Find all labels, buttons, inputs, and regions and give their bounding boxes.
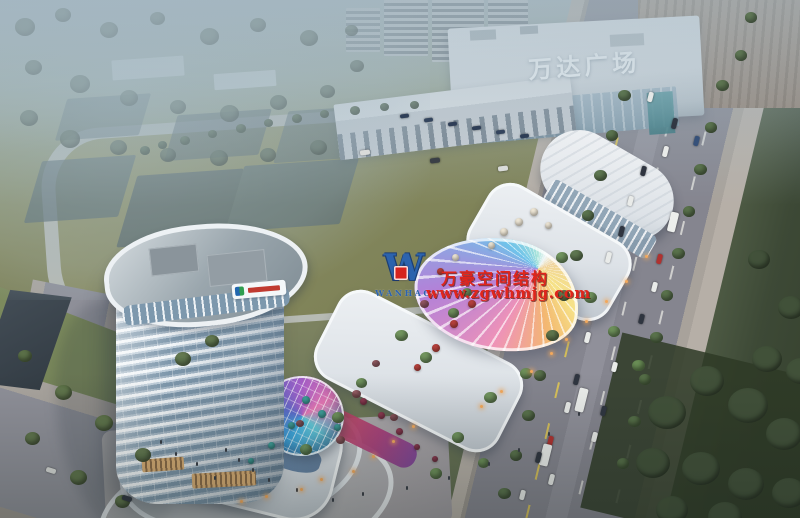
field-edge-tree (158, 141, 167, 149)
watermark-logo-shield-icon (394, 266, 408, 280)
park-tree (690, 366, 724, 396)
patio-umbrella (530, 208, 538, 216)
street-tree (582, 210, 594, 221)
apartment-tower (384, 0, 428, 56)
patio-umbrella (302, 396, 310, 404)
pedestrian (406, 486, 408, 490)
patio-umbrella (334, 424, 341, 431)
rooftop-equipment (149, 244, 200, 277)
storefront-light (265, 495, 268, 498)
street-tree (683, 206, 695, 217)
sidewalk-tree (175, 352, 191, 366)
patio-umbrella (500, 228, 508, 236)
pedestrian (448, 476, 450, 480)
park-tree (636, 448, 670, 478)
rooftop-unit (470, 29, 496, 40)
autumn-shrub (336, 436, 345, 444)
autumn-shrub (296, 420, 304, 427)
park-tree (778, 296, 800, 319)
patio-umbrella (515, 218, 523, 226)
watermark-website-url: www.zgwhmjg.com (426, 284, 591, 302)
pedestrian (578, 412, 580, 416)
podium-tree (448, 308, 459, 318)
hazy-tree (170, 100, 186, 114)
storefront-light (300, 488, 303, 491)
street-tree (617, 458, 629, 469)
hazy-tree (220, 105, 239, 122)
park-tree (656, 496, 688, 518)
sidewalk-tree (70, 470, 87, 485)
field-edge-tree (180, 136, 190, 145)
storefront-light (500, 390, 503, 393)
street-tree (639, 374, 651, 385)
hazy-tree (310, 140, 327, 155)
patio-umbrella (378, 412, 385, 419)
podium-tree (332, 412, 344, 423)
sidewalk-tree (95, 415, 113, 431)
podium-tree (452, 432, 464, 443)
field-edge-tree (140, 146, 150, 155)
podium-tree (420, 352, 432, 363)
hazy-tree (20, 110, 38, 126)
patio-umbrella (248, 458, 254, 464)
pedestrian (548, 432, 550, 436)
storefront-light (480, 405, 483, 408)
autumn-shrub (352, 390, 361, 398)
field-edge-tree (410, 101, 419, 109)
patio-umbrella (432, 456, 438, 462)
field-edge-tree (292, 114, 302, 123)
park-tree (772, 478, 800, 508)
pedestrian (268, 478, 270, 482)
podium-tree (430, 468, 442, 479)
hazy-tree (260, 148, 276, 162)
tower-logo-icon (235, 286, 245, 296)
hazy-tree (160, 148, 176, 162)
storefront-light (530, 370, 533, 373)
hazy-tree (210, 150, 228, 166)
hazy-tree (120, 90, 138, 106)
hazy-building-block (225, 158, 359, 232)
hazy-tree (270, 95, 287, 110)
pedestrian (518, 448, 520, 452)
podium-tree (608, 326, 620, 337)
patio-umbrella (414, 444, 420, 450)
pedestrian (332, 498, 334, 502)
storefront-light (412, 425, 415, 428)
storefront-light (372, 455, 375, 458)
storefront-light (320, 478, 323, 481)
street-tree (745, 12, 757, 23)
storefront-light (645, 255, 648, 258)
field-edge-tree (236, 124, 246, 133)
park-tree (728, 388, 768, 423)
hazy-tree (60, 130, 80, 148)
pedestrian (214, 476, 216, 480)
patio-umbrella (360, 398, 367, 405)
pedestrian (488, 462, 490, 466)
storefront-light (565, 338, 568, 341)
hazy-tree (200, 28, 219, 45)
hazy-tree (25, 60, 42, 75)
pedestrian (225, 448, 227, 452)
hazy-tree (110, 140, 127, 155)
park-tree (766, 418, 800, 450)
storefront-light (550, 352, 553, 355)
pedestrian (160, 440, 162, 444)
sidewalk-tree (55, 385, 72, 400)
hazy-tree (100, 22, 118, 38)
podium-tree (300, 444, 312, 455)
podium-tree (356, 378, 367, 388)
sidewalk-tree (135, 448, 151, 462)
storefront-light (605, 300, 608, 303)
pedestrian (175, 452, 177, 456)
autumn-shrub (390, 414, 398, 421)
patio-umbrella (318, 410, 326, 418)
street-tree (661, 290, 673, 301)
pedestrian (196, 462, 198, 466)
street-tree (735, 50, 747, 61)
patio-umbrella (432, 344, 440, 352)
hazy-tree (320, 85, 335, 98)
park-tree (728, 468, 764, 500)
pedestrian (238, 458, 240, 462)
patio-umbrella (414, 364, 421, 371)
field-edge-tree (264, 119, 273, 127)
storefront-light (625, 280, 628, 283)
pedestrian (252, 468, 254, 472)
patio-umbrella (450, 320, 458, 328)
storefront-light (240, 500, 243, 503)
field-edge-tree (350, 106, 360, 115)
hazy-shed-building (111, 56, 184, 81)
patio-umbrella (488, 242, 495, 249)
hazy-tree (150, 12, 165, 25)
field-edge-tree (208, 130, 217, 138)
patio-umbrella (288, 422, 295, 429)
hazy-tree (350, 60, 364, 72)
hazy-tree (15, 18, 35, 36)
podium-tree (556, 252, 568, 263)
street-tree (606, 130, 618, 141)
aerial-rendering-scene: 万达广场 W WANHAO 万豪空间结构 w (0, 0, 800, 518)
pedestrian (362, 492, 364, 496)
hazy-shed-building (214, 70, 277, 90)
hazy-tree (300, 30, 318, 46)
patio-umbrella (545, 222, 552, 229)
patio-umbrella (268, 442, 275, 449)
street-tree (534, 370, 546, 381)
patio-umbrella (396, 428, 403, 435)
pedestrian (296, 488, 298, 492)
rooftop-unit (520, 26, 538, 35)
street-tree (705, 122, 717, 133)
tower-logo-wordmark (248, 285, 280, 293)
storefront-light (585, 320, 588, 323)
patio-umbrella (452, 254, 459, 261)
hazy-tree (70, 75, 90, 93)
hazy-tree (250, 18, 266, 32)
field-edge-tree (380, 103, 389, 111)
storefront-light (392, 440, 395, 443)
hazy-tree (55, 8, 71, 22)
storefront-light (352, 470, 355, 473)
street-tree (510, 450, 522, 461)
autumn-shrub (372, 360, 380, 367)
field-edge-tree (320, 110, 329, 118)
